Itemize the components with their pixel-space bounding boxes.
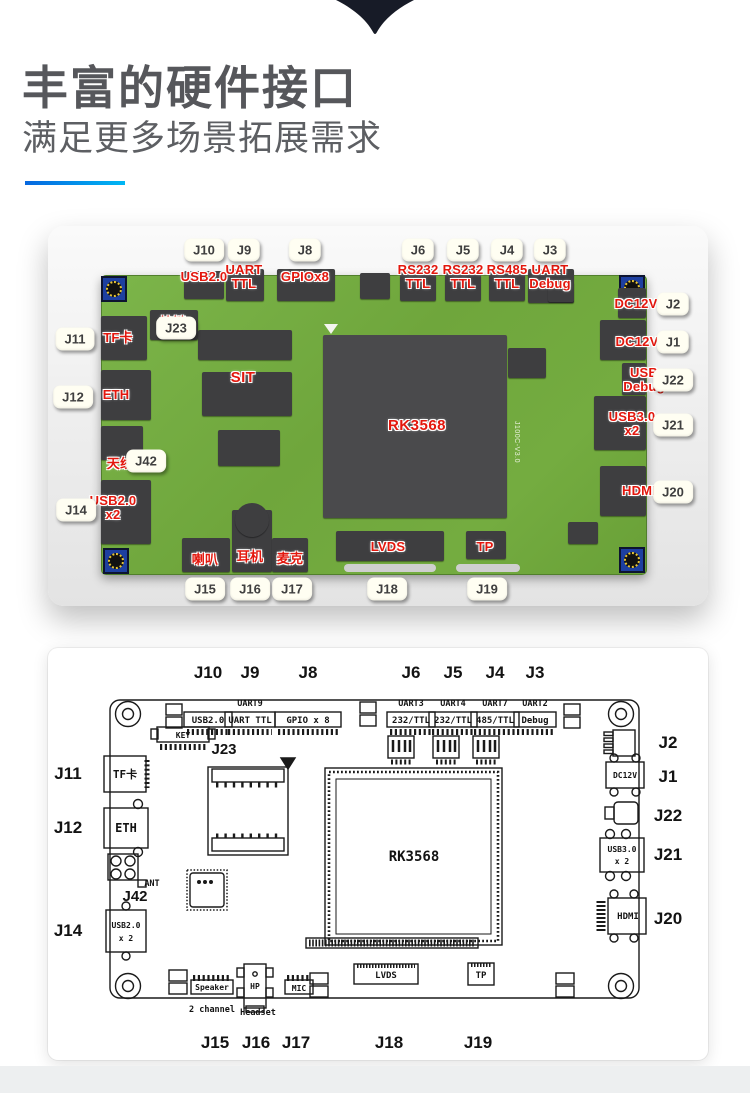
screw-icon xyxy=(619,547,645,573)
board-photo-card: J100C-V3.0 USB2.0 UART TTL GPIOx8 RS232 … xyxy=(48,226,708,606)
photo-badge-j15: J15 xyxy=(185,578,225,601)
diagram-box-485: 485/TTL xyxy=(476,716,515,726)
photo-badge-j12: J12 xyxy=(53,386,93,409)
photo-badge-j18: J18 xyxy=(367,578,407,601)
diagram-chip-label: RK3568 xyxy=(389,849,440,865)
diagram-small-uart3: UART3 xyxy=(398,699,424,709)
port-label-headphone: 耳机 xyxy=(237,550,263,564)
port-label-gpiox8: GPIOx8 xyxy=(281,270,329,284)
diagram-box-uart-ttl: UART TTL xyxy=(228,716,272,726)
port-label-uart-debug: UART Debug xyxy=(529,263,570,291)
photo-badge-j8: J8 xyxy=(289,239,321,262)
photo-badge-j19: J19 xyxy=(467,578,507,601)
diagram-jlabel-j8: J8 xyxy=(299,663,318,682)
port-label-uart-ttl: UART TTL xyxy=(226,263,263,291)
photo-badge-j9: J9 xyxy=(228,239,260,262)
port-label-hdmi: HDMI xyxy=(622,484,656,498)
diagram-jlabel-j16: J16 xyxy=(242,1033,270,1052)
chip-block xyxy=(568,522,598,544)
diagram-jlabel-j23: J23 xyxy=(211,741,236,758)
diagram-line-art xyxy=(104,700,646,1012)
diagram-box-dc12v: DC12V xyxy=(613,771,637,780)
diagram-jlabel-j11: J11 xyxy=(54,764,81,783)
diagram-jlabel-j42: J42 xyxy=(122,888,147,905)
diagram-box-key: KEY xyxy=(176,731,191,740)
diagram-jlabel-j18: J18 xyxy=(375,1033,403,1052)
diagram-jlabel-j22: J22 xyxy=(654,806,682,825)
silkscreen-text: J100C-V3.0 xyxy=(513,421,520,463)
port-label-usb20x2: USB2.0 x2 xyxy=(90,494,137,522)
diagram-box-232b: 232/TTL xyxy=(434,716,473,726)
photo-badge-j3: J3 xyxy=(534,239,566,262)
photo-badge-j14: J14 xyxy=(56,499,96,522)
accent-underline xyxy=(25,181,125,185)
page-title: 丰富的硬件接口 xyxy=(22,52,358,118)
diagram-box-speaker: Speaker xyxy=(195,983,229,992)
photo-badge-j2: J2 xyxy=(657,293,689,316)
diagram-box-eth: ETH xyxy=(115,821,137,835)
port-label-eth: ETH xyxy=(103,388,130,402)
diagram-box-debug: Debug xyxy=(521,716,548,726)
chip-label-rk3568: RK3568 xyxy=(388,418,446,434)
chip-block xyxy=(218,430,280,466)
photo-badge-j21: J21 xyxy=(653,414,693,437)
port-label-rs485: RS485 TTL xyxy=(487,263,528,291)
chip-block xyxy=(508,348,546,378)
diagram-small-uart7: UART7 xyxy=(482,699,508,709)
board-slot xyxy=(456,564,520,572)
diagram-jlabel-j20: J20 xyxy=(654,909,682,928)
port-label-lvds: LVDS xyxy=(371,540,406,554)
photo-badge-j17: J17 xyxy=(272,578,312,601)
port-label-rs232-a: RS232 TTL xyxy=(398,263,439,291)
photo-badge-j11: J11 xyxy=(56,328,95,351)
port-label-usb20: USB2.0 xyxy=(181,270,228,284)
port-label-dc12v-a: DC12V xyxy=(615,297,658,311)
port-label-tf: TF卡 xyxy=(103,331,132,345)
diagram-small-uart4: UART4 xyxy=(440,699,466,709)
port-label-usb30x2: USB3.0 x2 xyxy=(609,410,656,438)
board-slot xyxy=(344,564,436,572)
photo-badge-j10: J10 xyxy=(184,239,224,262)
port-label-rs232-b: RS232 TTL xyxy=(443,263,484,291)
diagram-box-usb20-l1: USB2.0 xyxy=(112,921,141,930)
port-label-dc12v-b: DC12V xyxy=(616,335,659,349)
diagram-box-usb30-l1: USB3.0 xyxy=(608,845,637,854)
diagram-box-gpio: GPIO x 8 xyxy=(286,716,329,726)
diagram-jlabel-j3: J3 xyxy=(526,663,545,682)
diagram-jlabel-j10: J10 xyxy=(194,663,222,682)
diagram-box-mic: MIC xyxy=(292,984,307,993)
diagram-jlabel-j5: J5 xyxy=(444,663,463,682)
photo-badge-j42: J42 xyxy=(126,450,166,473)
diagram-box-usb20-l2: x 2 xyxy=(119,934,134,943)
photo-badge-j22: J22 xyxy=(653,369,693,392)
photo-badge-j5: J5 xyxy=(447,239,479,262)
photo-badge-j4: J4 xyxy=(491,239,523,262)
diagram-box-lvds: LVDS xyxy=(375,971,397,981)
section-arrow-icon xyxy=(336,0,414,36)
port-label-speaker: 喇叭 xyxy=(192,553,218,567)
diagram-small-uart9: UART9 xyxy=(237,699,263,709)
diagram-box-usb20: USB2.0 xyxy=(192,716,225,726)
diagram-jlabel-j17: J17 xyxy=(282,1033,310,1052)
diagram-box-tf: TF卡 xyxy=(113,767,137,781)
photo-badge-j6: J6 xyxy=(402,239,434,262)
photo-badge-j20: J20 xyxy=(653,481,693,504)
photo-badge-j23: J23 xyxy=(156,317,196,340)
next-section-strip xyxy=(0,1066,750,1093)
photo-badge-j16: J16 xyxy=(230,578,270,601)
diagram-small-2channel: 2 channel xyxy=(189,1005,235,1015)
diagram-jlabel-j1: J1 xyxy=(659,767,678,786)
board-line-diagram: J10 J9 J8 J6 J5 J4 J3 UART9 UART3 UART4 … xyxy=(48,648,708,1060)
page-subtitle: 满足更多场景拓展需求 xyxy=(22,110,382,161)
screw-icon xyxy=(101,276,127,302)
port-label-sit: SIT xyxy=(231,370,256,386)
silkscreen-triangle xyxy=(324,324,338,334)
diagram-jlabel-j9: J9 xyxy=(241,663,260,682)
diagram-small-headset: Headset xyxy=(240,1008,276,1018)
diagram-box-tp: TP xyxy=(476,971,487,981)
diagram-box-hdmi: HDMI xyxy=(617,912,639,922)
diagram-jlabel-j12: J12 xyxy=(54,818,82,837)
diagram-jlabel-j2: J2 xyxy=(659,733,678,752)
port-label-mic: 麦克 xyxy=(277,552,303,566)
photo-badge-j1: J1 xyxy=(657,331,689,354)
diagram-small-uart2: UART2 xyxy=(522,699,548,709)
port-label-tp: TP xyxy=(476,540,493,554)
diagram-jlabel-j15: J15 xyxy=(201,1033,229,1052)
diagram-jlabel-j19: J19 xyxy=(464,1033,492,1052)
connector-block xyxy=(360,273,390,299)
screw-icon xyxy=(103,548,129,574)
memory-chip-block xyxy=(198,330,292,360)
diagram-box-usb30-l2: x 2 xyxy=(615,857,630,866)
diagram-jlabel-j6: J6 xyxy=(402,663,421,682)
diagram-jlabel-j4: J4 xyxy=(486,663,505,682)
board-diagram-card: J10 J9 J8 J6 J5 J4 J3 UART9 UART3 UART4 … xyxy=(48,648,708,1060)
diagram-jlabel-j21: J21 xyxy=(654,845,682,864)
diagram-labels: J10 J9 J8 J6 J5 J4 J3 UART9 UART3 UART4 … xyxy=(54,663,682,1052)
buzzer-block xyxy=(235,503,269,537)
diagram-jlabel-j14: J14 xyxy=(54,921,83,940)
diagram-box-232a: 232/TTL xyxy=(392,716,431,726)
diagram-box-hp: HP xyxy=(250,982,260,991)
